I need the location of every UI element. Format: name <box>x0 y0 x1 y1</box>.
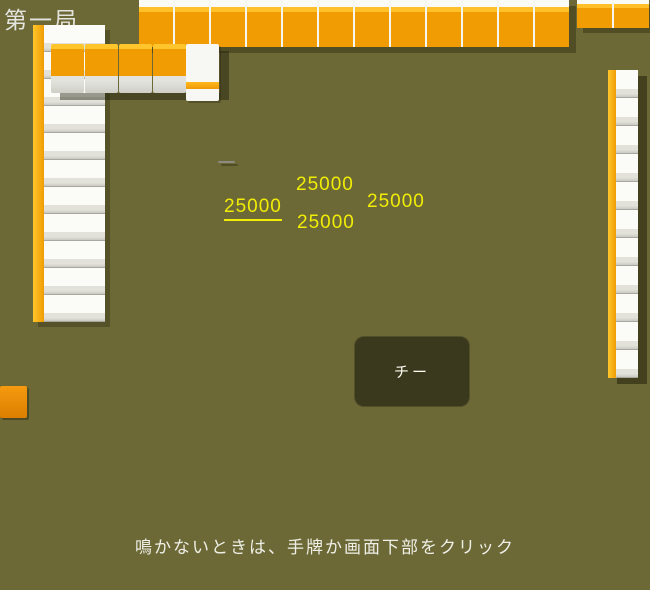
wall-tile <box>44 106 105 133</box>
score-top-player: 25000 <box>296 174 354 196</box>
wall-tile <box>616 70 638 98</box>
wall-tile <box>44 133 105 160</box>
wall-tile <box>616 210 638 238</box>
right-wall <box>608 70 638 378</box>
wall-tile <box>391 0 425 47</box>
hint-text: 鳴かないときは、手牌か画面下部をクリック <box>0 533 650 558</box>
wall-tile <box>616 154 638 182</box>
wall-tile <box>247 0 281 47</box>
wall-tile <box>319 0 353 47</box>
wall-tile <box>616 266 638 294</box>
wall-tile <box>616 350 638 378</box>
wall-tile <box>211 0 245 47</box>
wall-tile <box>616 294 638 322</box>
wall-tile <box>44 241 105 268</box>
dead-wall-back-tile <box>85 44 118 93</box>
wall-tile <box>283 0 317 47</box>
dead-wall-back-tile <box>51 44 84 93</box>
highlighted-facedown-tile <box>0 386 27 418</box>
wall-tile <box>139 0 173 47</box>
score-bottom-player: 25000 <box>297 212 355 234</box>
top-wall-corner <box>577 0 649 28</box>
dead-wall <box>51 44 220 93</box>
wall-tile <box>463 0 497 47</box>
dice <box>218 161 235 163</box>
wall-tile <box>616 322 638 350</box>
dead-wall-back-tile <box>153 44 186 93</box>
wall-tile <box>355 0 389 47</box>
score-left-player: 25000 <box>224 196 282 221</box>
mahjong-table[interactable]: 第一局 25000 25000 25000 25000 チー 鳴かないときは、手… <box>0 0 650 590</box>
wall-tile <box>614 0 649 28</box>
dora-indicator-tile <box>186 44 219 101</box>
wall-tile <box>44 214 105 241</box>
wall-tile <box>44 268 105 295</box>
wall-tile <box>535 0 569 47</box>
wall-tile <box>616 182 638 210</box>
wall-tile <box>616 126 638 154</box>
wall-tile <box>175 0 209 47</box>
wall-tile <box>499 0 533 47</box>
wall-tile <box>616 238 638 266</box>
wall-tile <box>577 0 612 28</box>
wall-tile <box>44 187 105 214</box>
chii-button[interactable]: チー <box>355 337 469 406</box>
dead-wall-back-tile <box>119 44 152 93</box>
wall-tile <box>44 295 105 322</box>
score-right-player: 25000 <box>367 191 425 213</box>
wall-tile <box>44 160 105 187</box>
top-wall <box>139 0 569 47</box>
wall-tile <box>616 98 638 126</box>
wall-tile <box>427 0 461 47</box>
